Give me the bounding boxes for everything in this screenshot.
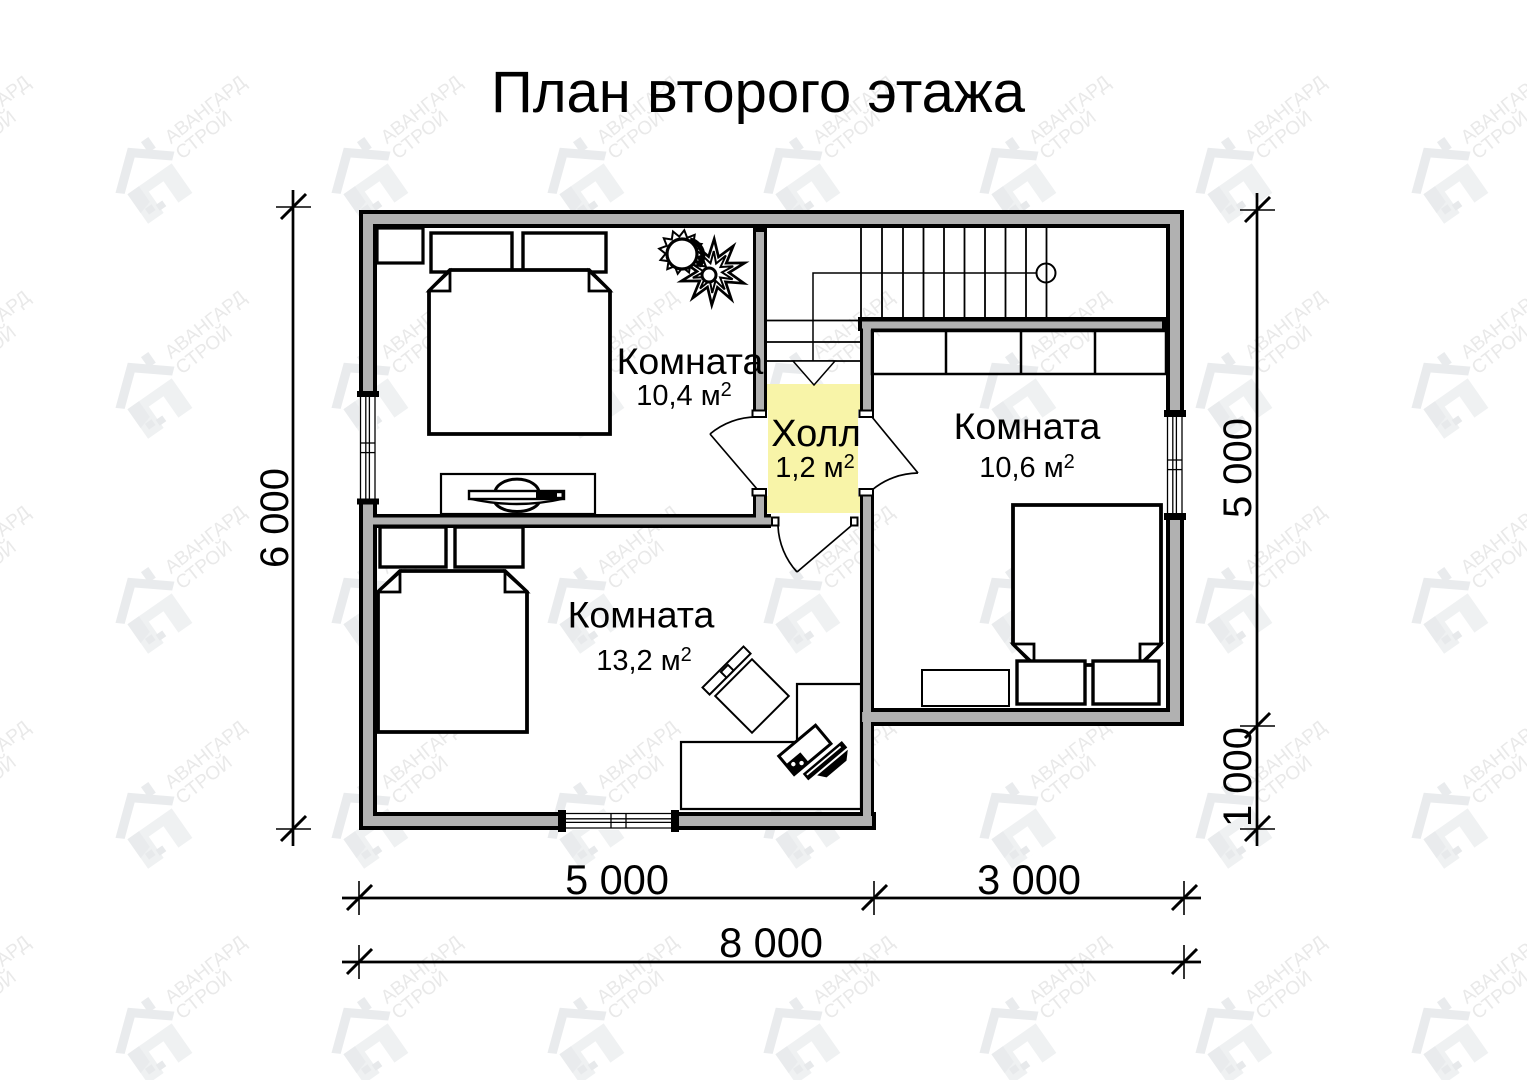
- svg-text:10,6 м2: 10,6 м2: [979, 451, 1075, 484]
- svg-text:6 000: 6 000: [253, 468, 297, 568]
- svg-text:Комната: Комната: [954, 405, 1101, 447]
- svg-text:Холл: Холл: [771, 413, 861, 455]
- svg-text:1 000: 1 000: [1216, 727, 1260, 827]
- svg-text:Комната: Комната: [617, 340, 764, 382]
- svg-text:3 000: 3 000: [977, 856, 1081, 903]
- svg-text:10,4 м2: 10,4 м2: [636, 379, 732, 412]
- svg-text:План второго этажа: План второго этажа: [491, 60, 1026, 125]
- svg-text:5 000: 5 000: [565, 856, 669, 903]
- svg-text:5 000: 5 000: [1216, 418, 1260, 518]
- svg-text:Комната: Комната: [568, 594, 715, 636]
- svg-text:1,2 м2: 1,2 м2: [775, 451, 854, 484]
- svg-text:8 000: 8 000: [719, 919, 823, 966]
- svg-text:13,2 м2: 13,2 м2: [596, 644, 692, 677]
